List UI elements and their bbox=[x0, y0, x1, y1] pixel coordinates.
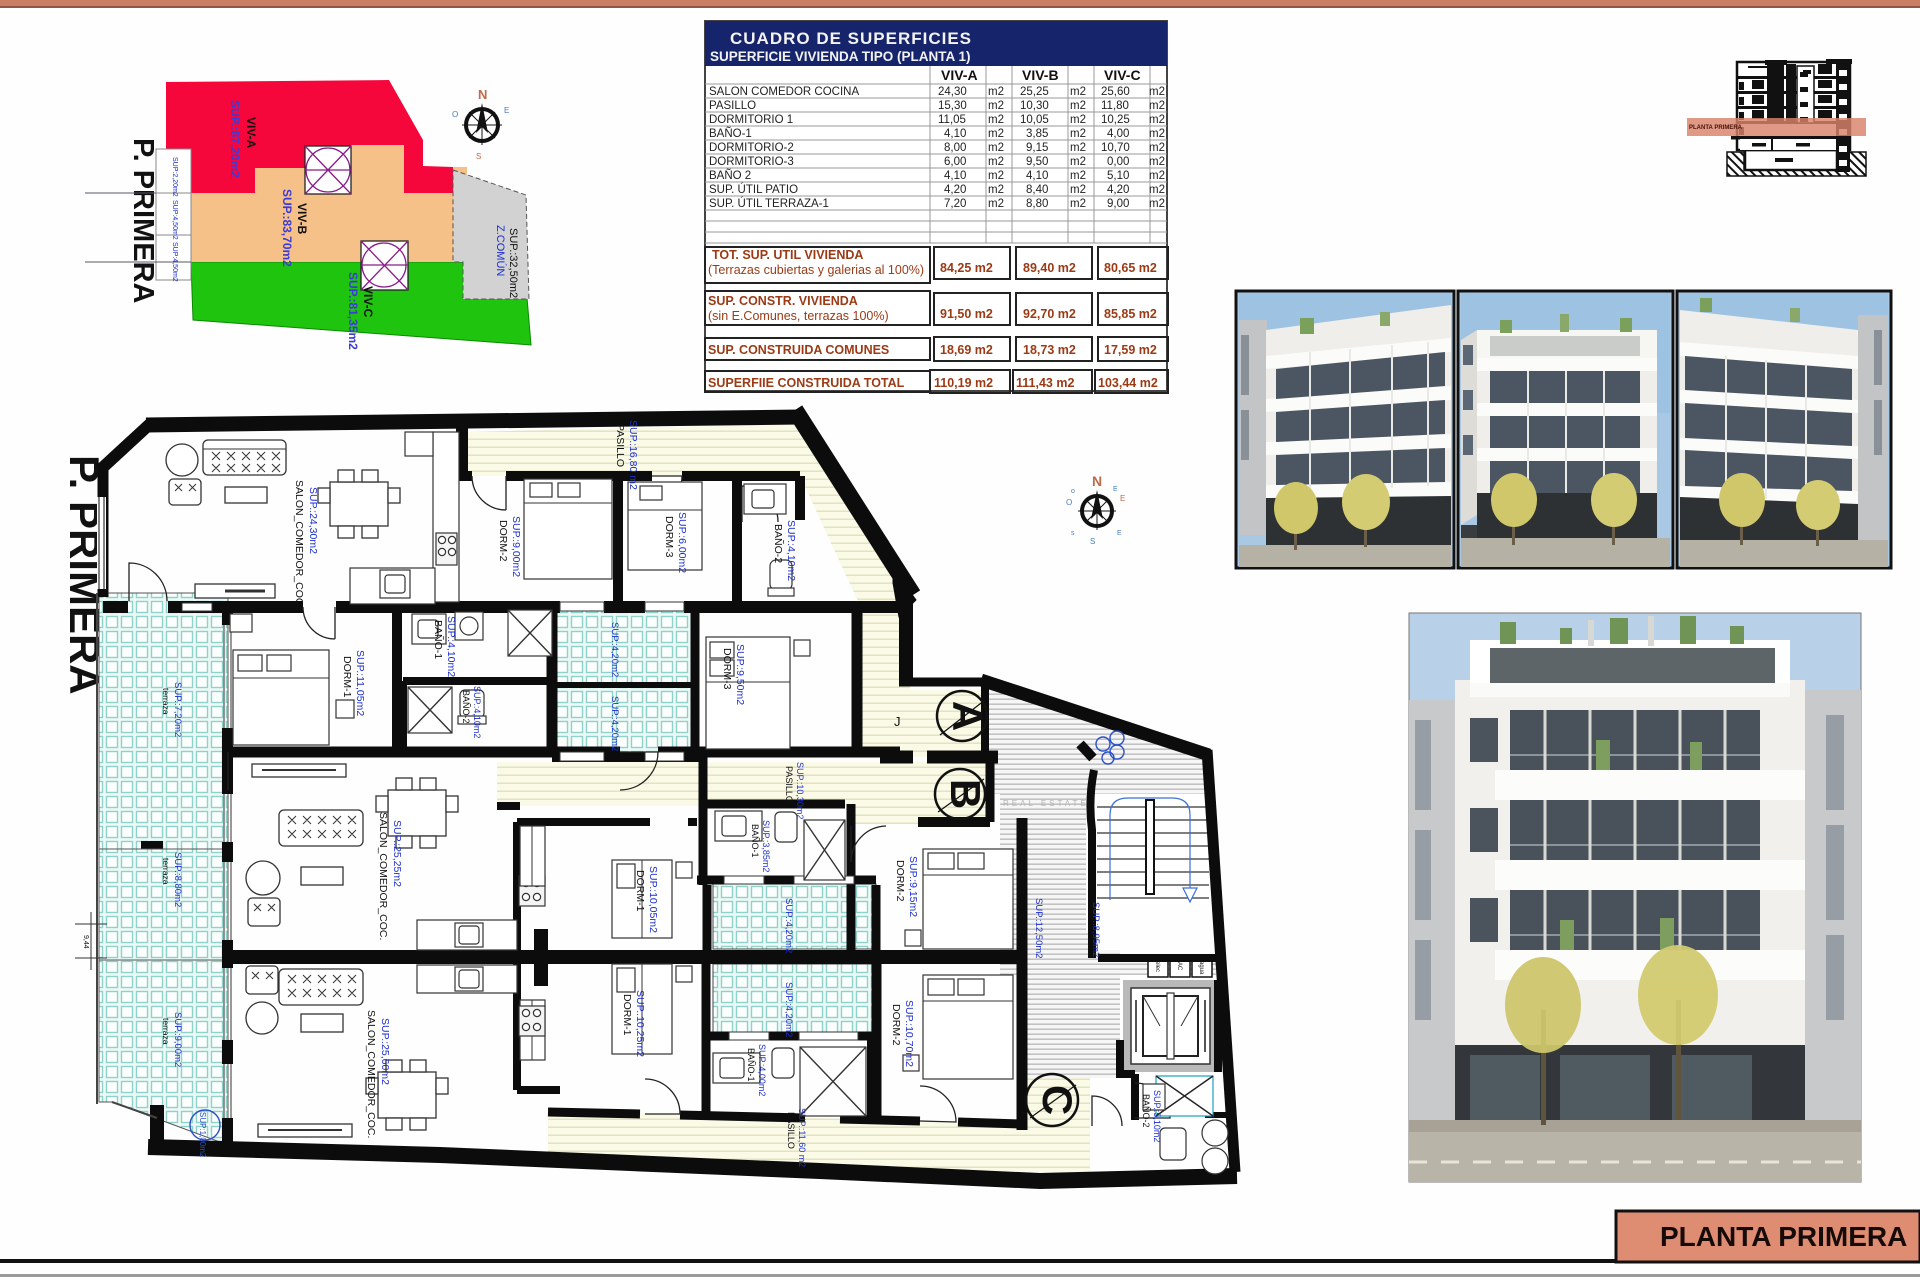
svg-text:SUP.:4,20m2: SUP.:4,20m2 bbox=[783, 898, 794, 953]
svg-text:m2: m2 bbox=[988, 86, 1004, 98]
svg-text:(sin E.Comunes, terrazas 100%): (sin E.Comunes, terrazas 100%) bbox=[708, 309, 889, 323]
svg-text:SUP.:4,20m2: SUP.:4,20m2 bbox=[609, 696, 620, 751]
svg-text:92,70 m2: 92,70 m2 bbox=[1023, 307, 1076, 321]
svg-text:REAL ESTATE: REAL ESTATE bbox=[1003, 799, 1089, 808]
svg-text:18,69 m2: 18,69 m2 bbox=[940, 343, 993, 357]
svg-text:SUP.:25,25m2: SUP.:25,25m2 bbox=[391, 820, 403, 887]
svg-text:SUP.:11,60 m2: SUP.:11,60 m2 bbox=[797, 1108, 807, 1167]
svg-text:BAÑO 2: BAÑO 2 bbox=[709, 169, 751, 182]
svg-text:m2: m2 bbox=[1070, 198, 1086, 210]
svg-text:m2: m2 bbox=[1149, 156, 1165, 168]
svg-text:DORM-3: DORM-3 bbox=[721, 648, 733, 690]
svg-text:m2: m2 bbox=[1149, 114, 1165, 126]
svg-text:DORM-3: DORM-3 bbox=[663, 516, 675, 558]
svg-text:SUP.:4,10m2: SUP.:4,10m2 bbox=[445, 616, 457, 677]
svg-text:6,00: 6,00 bbox=[944, 156, 966, 168]
svg-text:m2: m2 bbox=[1070, 142, 1086, 154]
svg-text:m2: m2 bbox=[988, 114, 1004, 126]
svg-text:9,15: 9,15 bbox=[1026, 142, 1048, 154]
svg-text:VIV-B: VIV-B bbox=[295, 203, 309, 235]
svg-text:m2: m2 bbox=[988, 156, 1004, 168]
svg-text:m2: m2 bbox=[1070, 86, 1086, 98]
svg-text:m2: m2 bbox=[1149, 142, 1165, 154]
svg-text:O: O bbox=[1066, 498, 1072, 507]
svg-text:SUP.:83,70m2: SUP.:83,70m2 bbox=[280, 189, 294, 267]
svg-text:m2: m2 bbox=[988, 100, 1004, 112]
svg-text:SUP.:10,70m2: SUP.:10,70m2 bbox=[903, 1000, 915, 1067]
svg-text:4,20: 4,20 bbox=[944, 184, 966, 196]
svg-text:4,00: 4,00 bbox=[1107, 128, 1129, 140]
svg-text:110,19 m2: 110,19 m2 bbox=[934, 376, 993, 390]
svg-text:SUP.:9,50m2: SUP.:9,50m2 bbox=[734, 644, 746, 705]
svg-text:m2: m2 bbox=[1070, 114, 1086, 126]
svg-text:PLANTA PRIMERA: PLANTA PRIMERA bbox=[1660, 1221, 1907, 1252]
svg-text:SUP.:24,30m2: SUP.:24,30m2 bbox=[307, 487, 319, 554]
svg-text:SUP.:11,05m2: SUP.:11,05m2 bbox=[354, 650, 366, 716]
svg-text:AC: AC bbox=[1176, 962, 1182, 971]
svg-text:11,05: 11,05 bbox=[938, 114, 966, 126]
svg-text:3,85: 3,85 bbox=[1026, 128, 1048, 140]
svg-text:SUP.:10,05m2: SUP.:10,05m2 bbox=[647, 866, 659, 933]
svg-text:Z.COMÚN: Z.COMÚN bbox=[494, 225, 507, 276]
svg-text:BAÑO-2: BAÑO-2 bbox=[461, 690, 471, 724]
svg-text:SALON_COMEDOR_COC.: SALON_COMEDOR_COC. bbox=[293, 480, 305, 608]
svg-text:9,50: 9,50 bbox=[1026, 156, 1048, 168]
svg-text:PASILLO: PASILLO bbox=[614, 424, 626, 467]
svg-text:SUP. ÚTIL PATIO: SUP. ÚTIL PATIO bbox=[709, 183, 798, 196]
svg-text:SUP:1,00m2: SUP:1,00m2 bbox=[198, 1112, 207, 1158]
svg-text:5,10: 5,10 bbox=[1107, 170, 1129, 182]
svg-text:BAÑO-1: BAÑO-1 bbox=[746, 1048, 756, 1082]
svg-text:S: S bbox=[476, 152, 481, 161]
svg-text:SUP:4,50m2: SUP:4,50m2 bbox=[171, 242, 178, 282]
svg-text:(Terrazas cubiertas y galerias: (Terrazas cubiertas y galerias al 100%) bbox=[708, 263, 924, 277]
svg-text:DORM-1: DORM-1 bbox=[341, 656, 353, 698]
svg-text:elec: elec bbox=[1154, 961, 1160, 972]
svg-text:SUP. ÚTIL TERRAZA-1: SUP. ÚTIL TERRAZA-1 bbox=[709, 197, 829, 210]
svg-text:VIV-A: VIV-A bbox=[244, 117, 258, 149]
svg-text:SALON COMEDOR COCINA: SALON COMEDOR COCINA bbox=[709, 86, 859, 98]
svg-text:89,40 m2: 89,40 m2 bbox=[1023, 261, 1076, 275]
svg-text:E: E bbox=[504, 106, 509, 115]
svg-text:10,30: 10,30 bbox=[1020, 100, 1049, 112]
svg-text:10,70: 10,70 bbox=[1101, 142, 1130, 154]
svg-text:18,73 m2: 18,73 m2 bbox=[1023, 343, 1076, 357]
svg-text:91,50 m2: 91,50 m2 bbox=[940, 307, 993, 321]
svg-text:17,59 m2: 17,59 m2 bbox=[1104, 343, 1157, 357]
svg-text:10,05: 10,05 bbox=[1020, 114, 1049, 126]
svg-text:SUP.:4,20m2: SUP.:4,20m2 bbox=[609, 622, 620, 677]
svg-text:SUPERFICIE VIVIENDA TIPO (PLA: SUPERFICIE VIVIENDA TIPO (PLANTA 1) bbox=[710, 49, 971, 64]
svg-text:m2: m2 bbox=[1149, 100, 1165, 112]
svg-text:m2: m2 bbox=[1149, 198, 1165, 210]
svg-text:m2: m2 bbox=[1070, 170, 1086, 182]
svg-text:SUP.:4,10m2: SUP.:4,10m2 bbox=[785, 520, 797, 581]
svg-text:m2: m2 bbox=[1070, 100, 1086, 112]
svg-text:8,00: 8,00 bbox=[944, 142, 966, 154]
svg-text:25,60: 25,60 bbox=[1101, 86, 1130, 98]
svg-text:4,10: 4,10 bbox=[944, 170, 966, 182]
svg-text:m2: m2 bbox=[1149, 128, 1165, 140]
svg-text:SUP.:12,50m2: SUP.:12,50m2 bbox=[1033, 898, 1044, 959]
svg-text:84,25 m2: 84,25 m2 bbox=[940, 261, 993, 275]
svg-text:O: O bbox=[452, 110, 458, 119]
svg-text:25,25: 25,25 bbox=[1020, 86, 1049, 98]
svg-text:m2: m2 bbox=[988, 142, 1004, 154]
svg-text:4,20: 4,20 bbox=[1107, 184, 1129, 196]
svg-text:m2: m2 bbox=[1070, 156, 1086, 168]
svg-text:N: N bbox=[1092, 473, 1102, 489]
svg-text:10,25: 10,25 bbox=[1101, 114, 1130, 126]
svg-text:PASILLO: PASILLO bbox=[784, 766, 794, 803]
svg-text:SUP.:4,00m2: SUP.:4,00m2 bbox=[757, 1044, 767, 1096]
svg-text:SUP:2,20m2: SUP:2,20m2 bbox=[171, 157, 178, 197]
svg-text:PASILLO: PASILLO bbox=[709, 100, 756, 112]
svg-text:85,85 m2: 85,85 m2 bbox=[1104, 307, 1157, 321]
svg-text:8,80: 8,80 bbox=[1026, 198, 1048, 210]
svg-text:DORMITORIO 1: DORMITORIO 1 bbox=[709, 114, 793, 126]
svg-text:4,10: 4,10 bbox=[1026, 170, 1048, 182]
svg-text:SUP.:4,10m2: SUP.:4,10m2 bbox=[472, 686, 482, 738]
svg-text:SUP.:10,25m2: SUP.:10,25m2 bbox=[634, 990, 646, 1057]
svg-text:SUP.:87,20m2: SUP.:87,20m2 bbox=[228, 100, 242, 178]
svg-text:S: S bbox=[1090, 537, 1095, 546]
svg-text:SUP.:9,00m2: SUP.:9,00m2 bbox=[172, 1012, 183, 1067]
svg-text:BAÑO-2: BAÑO-2 bbox=[1141, 1094, 1151, 1128]
svg-text:DORMITORIO-3: DORMITORIO-3 bbox=[709, 156, 794, 168]
svg-text:terraza: terraza bbox=[161, 688, 171, 715]
svg-text:4,10: 4,10 bbox=[944, 128, 966, 140]
svg-text:SUP.:9,00m2: SUP.:9,00m2 bbox=[510, 516, 522, 577]
svg-text:DORM-2: DORM-2 bbox=[890, 1004, 902, 1046]
svg-text:SUP.:8,80m2: SUP.:8,80m2 bbox=[172, 852, 183, 907]
svg-text:0,00: 0,00 bbox=[1107, 156, 1129, 168]
svg-text:9,00: 9,00 bbox=[1107, 198, 1129, 210]
svg-text:DORM-1: DORM-1 bbox=[634, 870, 646, 912]
svg-text:VIV-A: VIV-A bbox=[941, 67, 978, 83]
svg-text:SUPERFIIE CONSTRUIDA TOTAL: SUPERFIIE CONSTRUIDA TOTAL bbox=[708, 376, 905, 390]
svg-text:103,44 m2: 103,44 m2 bbox=[1098, 376, 1158, 390]
svg-text:SUP:4,50m2: SUP:4,50m2 bbox=[171, 200, 178, 240]
svg-text:DORM-2: DORM-2 bbox=[497, 520, 509, 562]
svg-text:PLANTA PRIMERA: PLANTA PRIMERA bbox=[1689, 125, 1743, 131]
svg-text:SUP.:8,95m2: SUP.:8,95m2 bbox=[1090, 902, 1101, 957]
svg-text:111,43 m2: 111,43 m2 bbox=[1016, 376, 1074, 390]
svg-text:11,80: 11,80 bbox=[1101, 100, 1129, 112]
svg-text:BAÑO-1: BAÑO-1 bbox=[432, 620, 445, 659]
svg-text:BAÑO-1: BAÑO-1 bbox=[750, 824, 760, 858]
svg-text:m2: m2 bbox=[1070, 184, 1086, 196]
svg-text:m2: m2 bbox=[1149, 170, 1165, 182]
svg-text:15,30: 15,30 bbox=[938, 100, 967, 112]
svg-text:BAÑO-1: BAÑO-1 bbox=[709, 127, 752, 140]
svg-text:P. PRIMERA: P. PRIMERA bbox=[127, 138, 159, 304]
svg-text:VIV-B: VIV-B bbox=[1022, 67, 1059, 83]
svg-text:m2: m2 bbox=[988, 170, 1004, 182]
svg-text:CUADRO DE SUPERFICIES: CUADRO DE SUPERFICIES bbox=[730, 29, 972, 48]
svg-text:N: N bbox=[478, 87, 487, 102]
svg-text:DORM-1: DORM-1 bbox=[621, 994, 633, 1036]
svg-text:BAÑO-2: BAÑO-2 bbox=[772, 524, 785, 563]
svg-text:m2: m2 bbox=[1149, 184, 1165, 196]
svg-text:SUP.:25,60m2: SUP.:25,60m2 bbox=[379, 1018, 391, 1085]
svg-text:SUP.:9,15m2: SUP.:9,15m2 bbox=[907, 856, 919, 917]
svg-text:terraza: terraza bbox=[161, 1018, 171, 1045]
svg-text:agua: agua bbox=[1198, 961, 1204, 975]
svg-text:SUP.:32,50m2: SUP.:32,50m2 bbox=[507, 228, 519, 298]
svg-text:VIV-C: VIV-C bbox=[1104, 67, 1141, 83]
svg-text:TOT. SUP. UTIL VIVIENDA: TOT. SUP. UTIL VIVIENDA bbox=[712, 248, 863, 262]
svg-text:SUP.:16,80 m2: SUP.:16,80 m2 bbox=[627, 420, 639, 490]
svg-text:VIV-C: VIV-C bbox=[361, 286, 375, 318]
svg-text:J: J bbox=[894, 714, 901, 729]
svg-text:SUP. CONSTRUIDA COMUNES: SUP. CONSTRUIDA COMUNES bbox=[708, 343, 889, 357]
svg-text:SUP.:81,35m2: SUP.:81,35m2 bbox=[346, 272, 360, 350]
svg-text:E: E bbox=[1117, 530, 1122, 537]
svg-text:s: s bbox=[1071, 530, 1075, 537]
svg-text:E: E bbox=[1120, 494, 1125, 503]
svg-text:m2: m2 bbox=[988, 198, 1004, 210]
svg-text:SUP.:5,10m2: SUP.:5,10m2 bbox=[1152, 1090, 1162, 1142]
svg-text:DORMITORIO-2: DORMITORIO-2 bbox=[709, 142, 794, 154]
svg-text:m2: m2 bbox=[988, 184, 1004, 196]
svg-text:m2: m2 bbox=[1070, 128, 1086, 140]
svg-text:terraza: terraza bbox=[161, 858, 171, 885]
svg-text:7,20: 7,20 bbox=[944, 198, 966, 210]
svg-text:24,30: 24,30 bbox=[938, 86, 967, 98]
svg-text:DORM-2: DORM-2 bbox=[894, 860, 906, 902]
svg-text:SUP.:6,00m2: SUP.:6,00m2 bbox=[676, 512, 688, 573]
svg-text:9,44: 9,44 bbox=[82, 935, 89, 949]
svg-text:SUP.:10,30m2: SUP.:10,30m2 bbox=[795, 762, 805, 819]
svg-text:o: o bbox=[1071, 488, 1075, 495]
svg-text:m2: m2 bbox=[1149, 86, 1165, 98]
svg-text:SUP. CONSTR. VIVIENDA: SUP. CONSTR. VIVIENDA bbox=[708, 294, 858, 308]
svg-text:SUP.:4,20m2: SUP.:4,20m2 bbox=[783, 982, 794, 1037]
svg-text:SUP.:7,20m2: SUP.:7,20m2 bbox=[172, 682, 183, 737]
svg-text:80,65 m2: 80,65 m2 bbox=[1104, 261, 1157, 275]
svg-text:SALON_COMEDOR_COC.: SALON_COMEDOR_COC. bbox=[377, 812, 389, 940]
svg-text:SUP.:3,85m2: SUP.:3,85m2 bbox=[761, 820, 771, 872]
svg-text:m2: m2 bbox=[988, 128, 1004, 140]
svg-text:E: E bbox=[1113, 486, 1118, 493]
svg-text:SALON_COMEDOR_COC.: SALON_COMEDOR_COC. bbox=[365, 1010, 377, 1138]
svg-text:8,40: 8,40 bbox=[1026, 184, 1048, 196]
svg-text:PASILLO: PASILLO bbox=[786, 1112, 796, 1149]
